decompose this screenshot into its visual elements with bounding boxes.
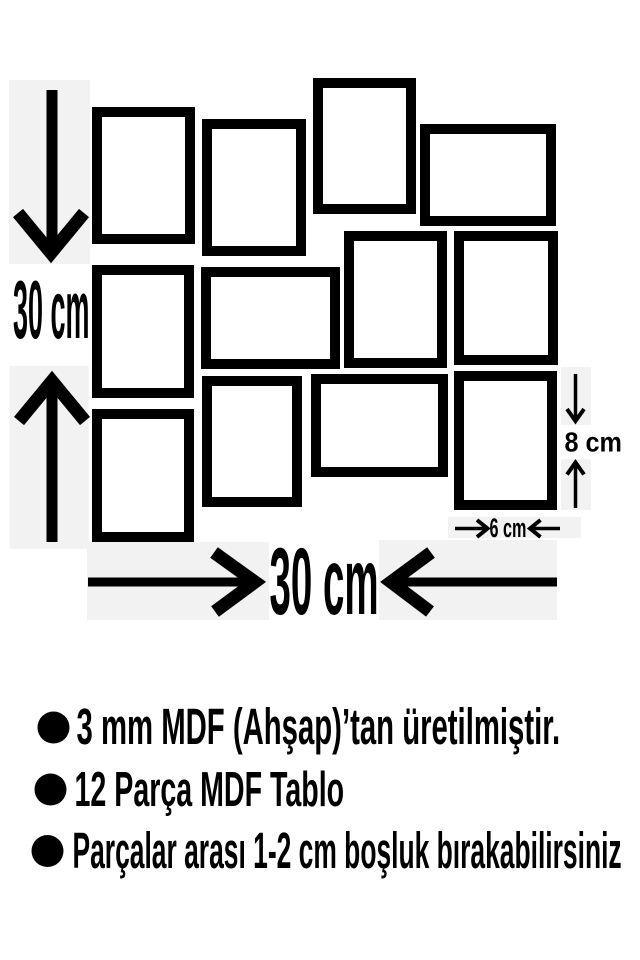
svg-text:30 cm: 30 cm [270, 529, 379, 635]
svg-text:30 cm: 30 cm [13, 264, 89, 357]
svg-text:8 cm: 8 cm [565, 426, 622, 458]
svg-text:6 cm: 6 cm [490, 513, 527, 543]
svg-text:Parçalar arası 1-2 cm boşluk b: Parçalar arası 1-2 cm boşluk bırakabilir… [73, 822, 622, 880]
svg-text:12 Parça MDF Tablo: 12 Parça MDF Tablo [75, 761, 345, 817]
svg-text:3 mm MDF (Ahşap)’tan üretilmiş: 3 mm MDF (Ahşap)’tan üretilmiştir. [77, 697, 561, 755]
